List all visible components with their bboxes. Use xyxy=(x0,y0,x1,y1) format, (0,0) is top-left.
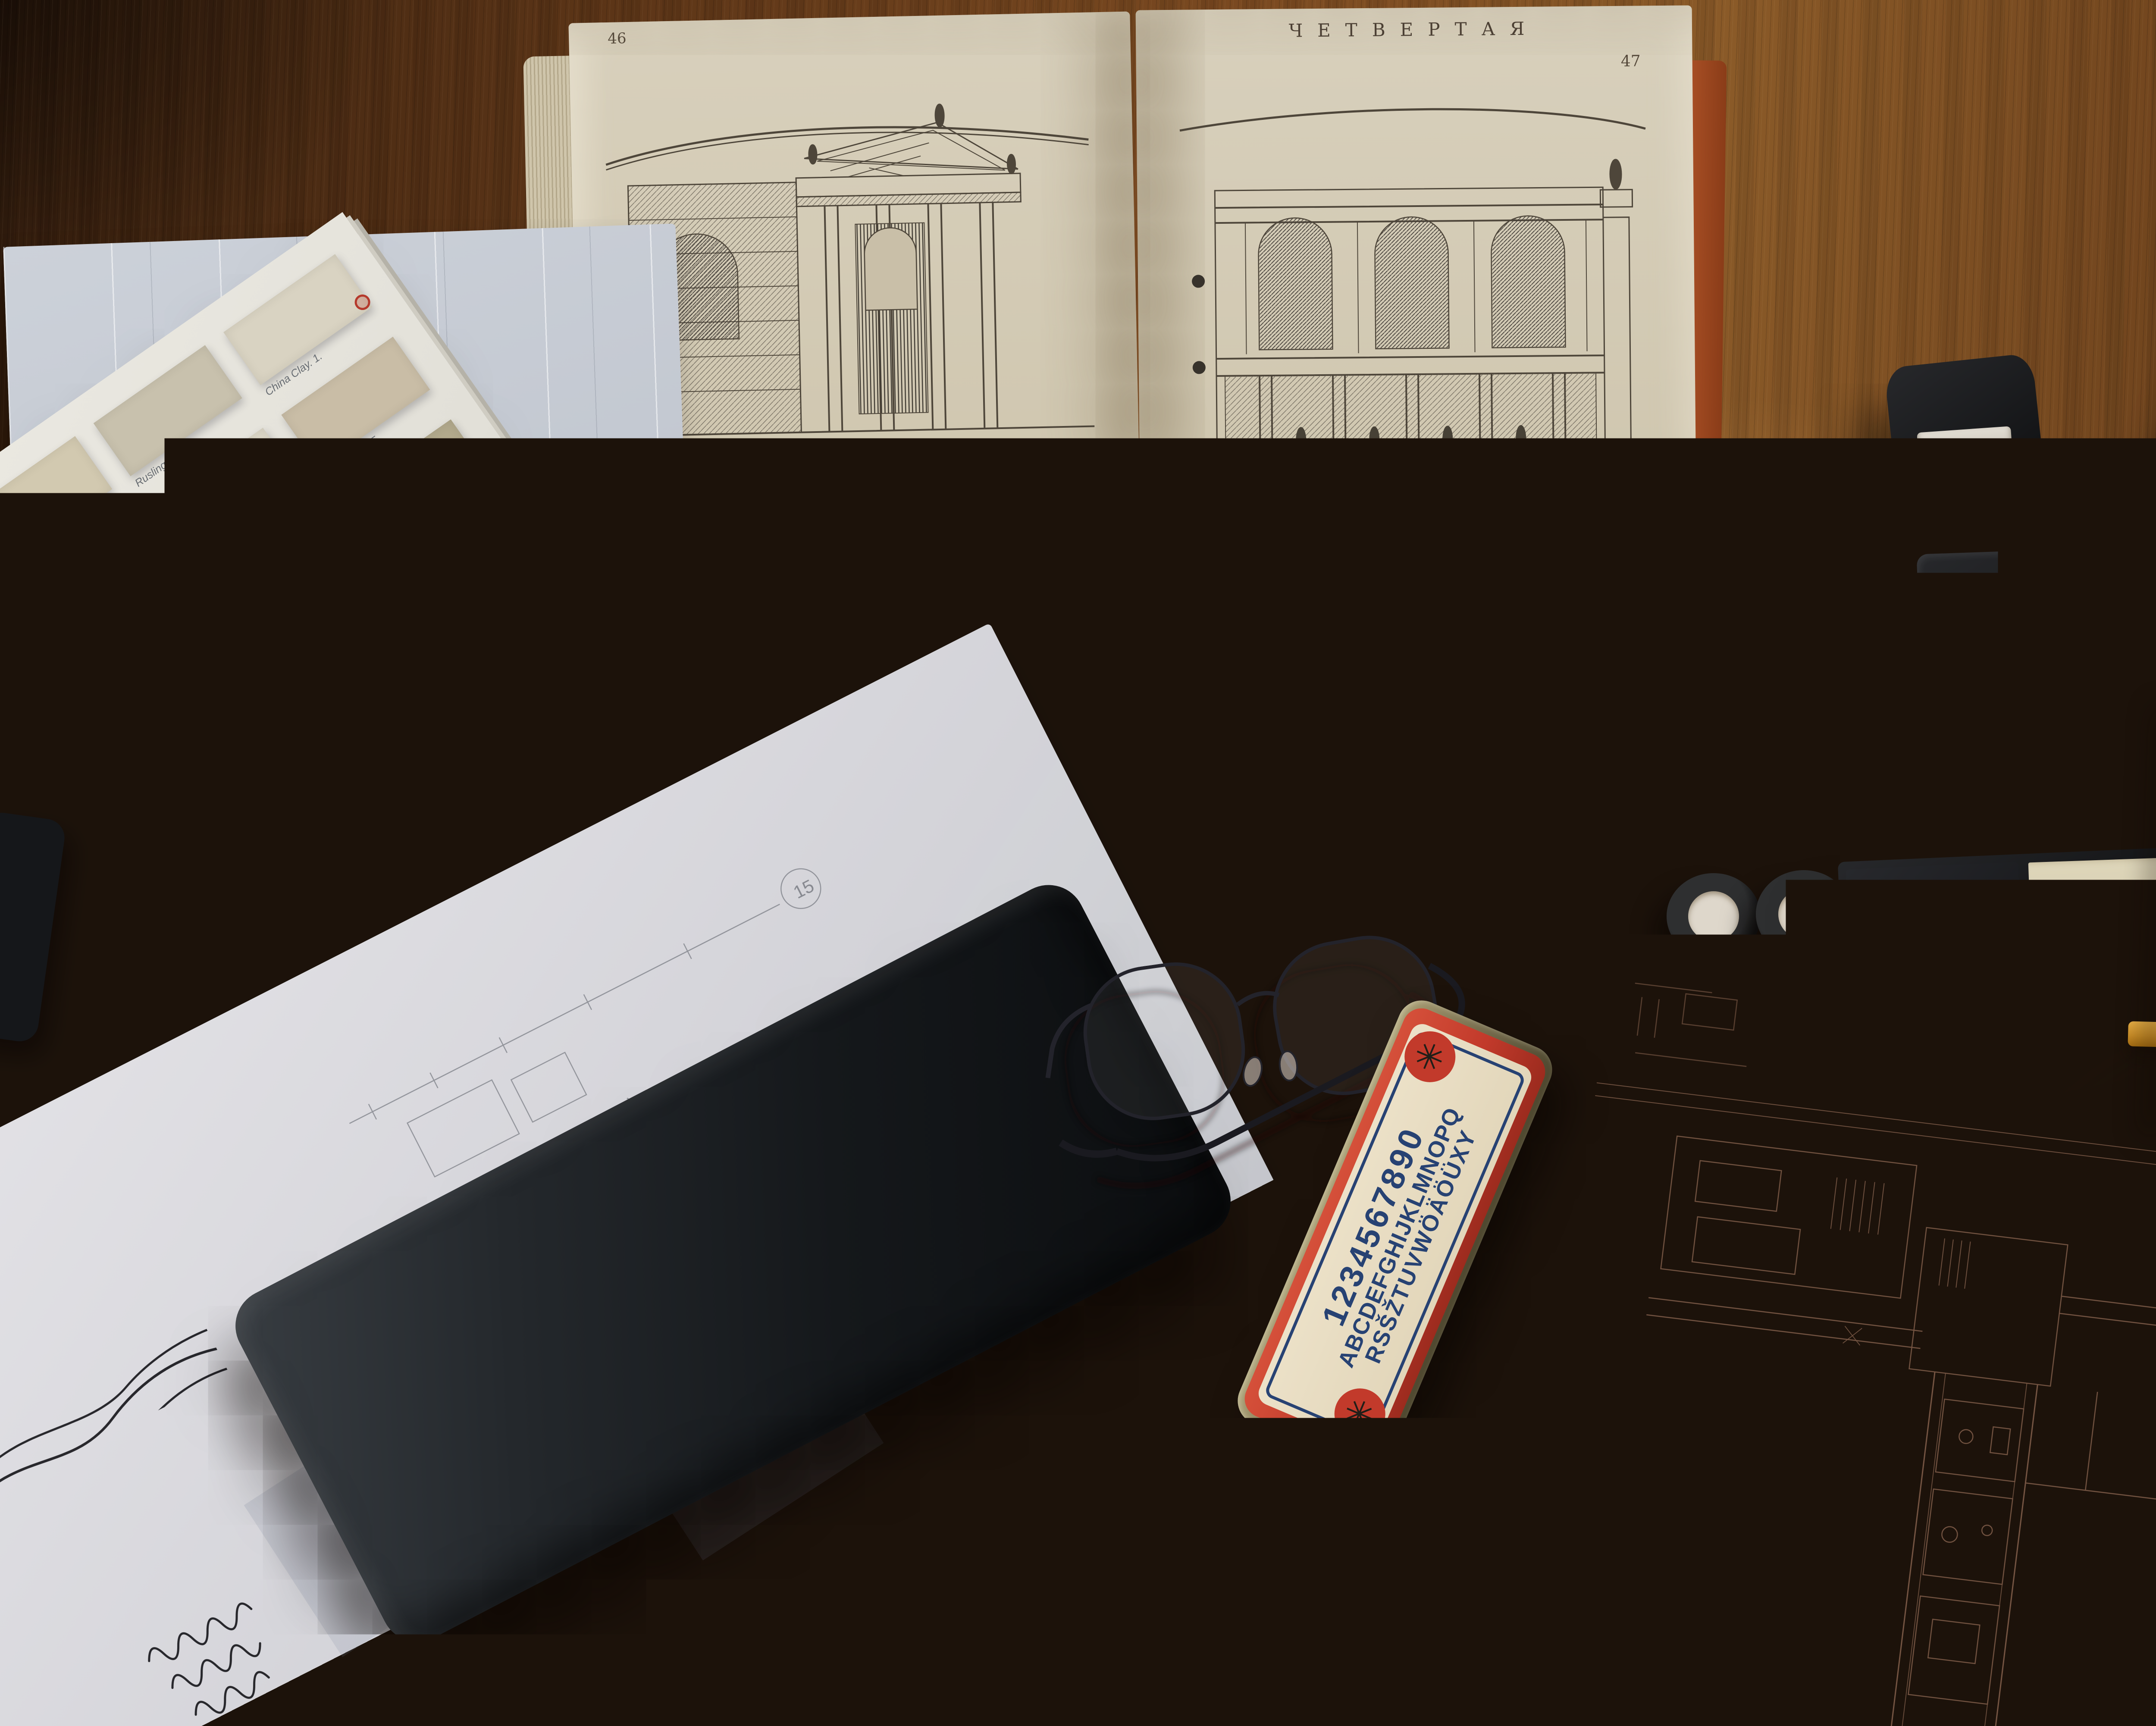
note-tray xyxy=(1838,846,2156,1032)
engraving-right-page xyxy=(1149,70,1686,825)
slot-rod xyxy=(2040,648,2156,674)
desk-scene: h.f.ullmann 46 xyxy=(0,0,2156,1726)
sticky-note-pad xyxy=(2028,857,2156,1005)
page-number-left: 46 xyxy=(608,30,627,47)
tape-ring xyxy=(1667,873,1761,959)
book-right-page: ЧЕТВЕРТАЯ 47 xyxy=(1136,5,1699,842)
tape-ring xyxy=(1756,870,1852,958)
asterisk-glyph: ✳ xyxy=(1404,1034,1455,1079)
open-tin-lid xyxy=(1755,580,1906,780)
slotted-box xyxy=(1917,541,2156,818)
sharpener-hole-small xyxy=(1971,446,1996,472)
asterisk-glyph: ✳ xyxy=(1335,1392,1385,1436)
tray-block xyxy=(1846,862,2025,1024)
svg-text:15: 15 xyxy=(790,875,817,902)
sharpener-plate xyxy=(1917,426,2015,493)
ring-core xyxy=(1778,889,1829,939)
box-slot xyxy=(2033,607,2156,686)
ring-core xyxy=(1688,891,1739,941)
page-number-right: 47 xyxy=(1621,52,1641,70)
lid-interior xyxy=(1770,595,1891,766)
sharpener-hole-large xyxy=(1926,441,1963,477)
chapter-header: ЧЕТВЕРТАЯ xyxy=(1136,16,1692,42)
